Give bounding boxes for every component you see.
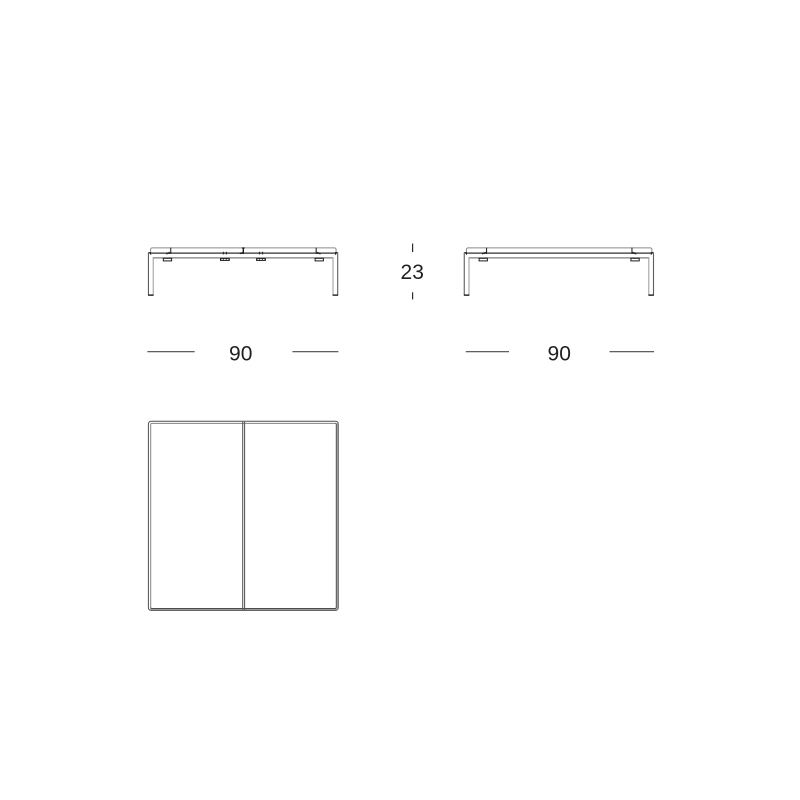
- svg-text:90: 90: [548, 342, 571, 365]
- svg-text:90: 90: [229, 342, 252, 365]
- svg-text:23: 23: [401, 261, 424, 284]
